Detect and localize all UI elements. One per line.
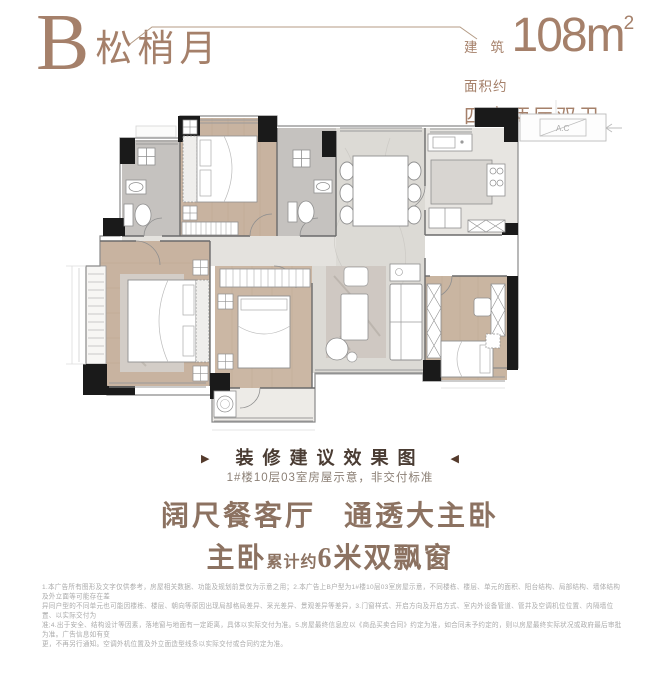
ac-label: A.C xyxy=(556,124,570,133)
disclaimer-line: 准;4.出于安全、结构设计等因素，落地窗与地面有一定距离，具体以实际交付为准。5… xyxy=(42,621,626,640)
dining-table xyxy=(340,156,421,226)
caption-row: ▶装修建议效果图◀ xyxy=(0,444,660,470)
area-label-zhu: 筑 xyxy=(491,38,506,58)
page: B 松梢月 建 筑 面积约 108m2 四房两厅双卫 xyxy=(0,0,660,642)
slogan-line-2: 主卧累计约6米双飘窗 xyxy=(0,536,660,576)
unit-brand: B 松梢月 xyxy=(36,8,221,78)
bay-window-seat xyxy=(79,266,106,364)
area-label-jian: 建 xyxy=(464,38,479,58)
area-superscript: 2 xyxy=(624,13,635,34)
ac-platform: A.C xyxy=(520,100,622,141)
area-value: 108m2 xyxy=(512,12,635,60)
slogan-line1-left: 阔尺餐客厅 xyxy=(161,501,316,532)
disclaimer-line: 异同户型的不同单元也可能因楼栋、楼层、朝向等原因出现局部格局差异、采光差异、景观… xyxy=(42,602,626,621)
disclaimer-line: 更，不再另行通知。空调外机位置及外立面造型线条以实际交付或合同约定为准。 xyxy=(42,640,626,649)
caption-title: 装修建议效果图 xyxy=(236,448,425,468)
caption-subtitle: 1#楼10层03室房屋示意，非交付标准 xyxy=(0,469,660,485)
slogan-line2-small: 累计约 xyxy=(266,554,317,571)
area-number: 108m xyxy=(512,9,624,62)
unit-name: 松梢月 xyxy=(95,18,221,72)
left-arrow-icon: ▶ xyxy=(201,453,209,465)
area-label: 建 筑 面积约 xyxy=(464,18,508,96)
slogan-line2-big1: 主卧 xyxy=(206,543,266,574)
area-label-approx: 面积约 xyxy=(464,79,508,94)
right-arrow-icon: ◀ xyxy=(451,453,459,465)
slogan-line1-right: 通透大主卧 xyxy=(344,501,499,532)
balcony-fixtures xyxy=(214,391,236,417)
living-room-furniture xyxy=(326,264,422,362)
disclaimer-line: 1.本广告所有图形及文字仅供参考，房屋相关数据、功能及规划前景仅为示意之用；2.… xyxy=(42,583,626,602)
floor-plan: A.C xyxy=(0,98,660,438)
slogan-line2-big2: 6米双飘窗 xyxy=(318,543,454,574)
disclaimer: 1.本广告所有图形及文字仅供参考，房屋相关数据、功能及规划前景仅为示意之用；2.… xyxy=(42,583,642,685)
unit-letter: B xyxy=(36,8,89,78)
slogan-line-1: 阔尺餐客厅通透大主卧 xyxy=(0,494,660,534)
